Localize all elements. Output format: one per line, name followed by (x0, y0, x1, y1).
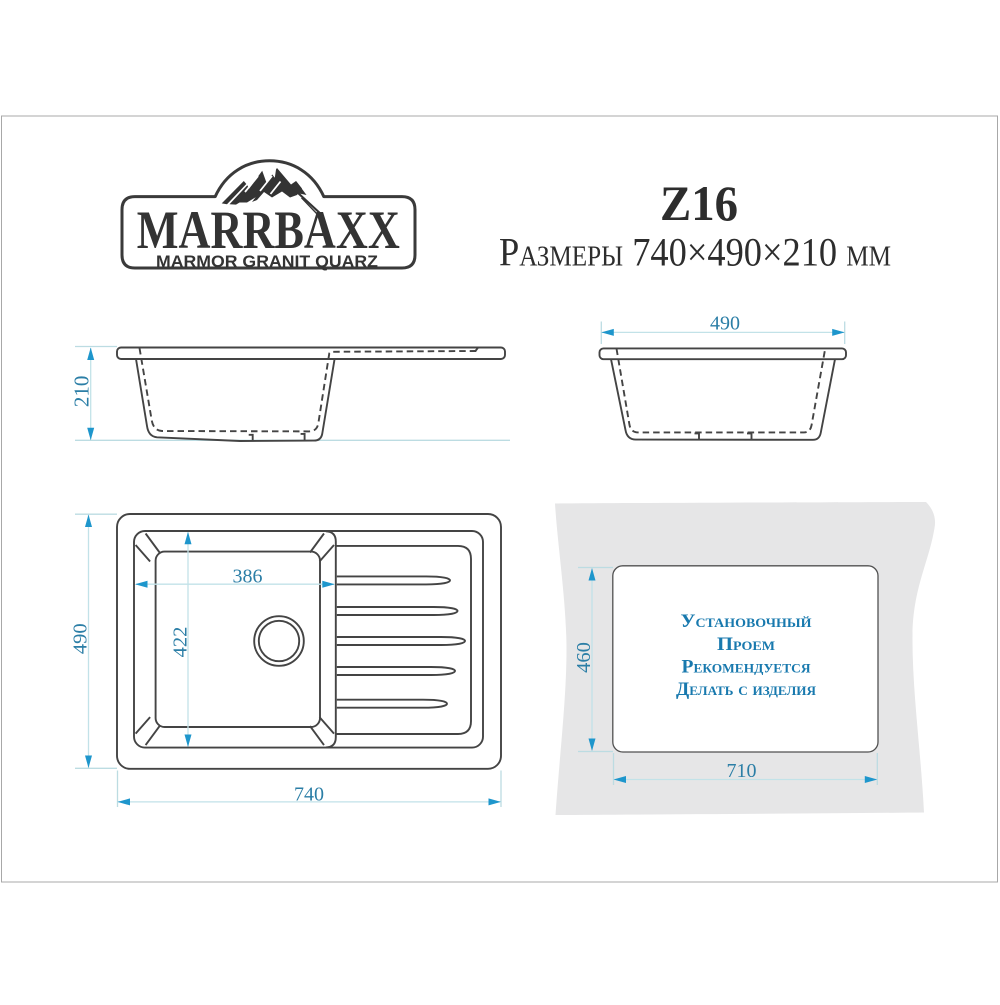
svg-text:490: 490 (69, 623, 91, 654)
svg-text:740: 740 (294, 784, 324, 806)
svg-text:Рекомендуется: Рекомендуется (682, 657, 812, 678)
svg-text:Z16: Z16 (660, 175, 738, 231)
svg-text:Размеры 740×490×210 мм: Размеры 740×490×210 мм (499, 230, 891, 275)
svg-text:490: 490 (710, 313, 740, 335)
svg-text:210: 210 (70, 376, 94, 408)
svg-text:Делать с изделия: Делать с изделия (676, 679, 817, 700)
svg-text:422: 422 (169, 627, 191, 658)
svg-text:460: 460 (573, 642, 595, 673)
svg-text:386: 386 (233, 566, 263, 588)
svg-text:Проем: Проем (717, 634, 775, 655)
svg-text:MARMOR GRANIT QUARZ: MARMOR GRANIT QUARZ (156, 253, 378, 271)
svg-text:MARRBAXX: MARRBAXX (137, 200, 400, 260)
svg-text:Установочный: Установочный (681, 611, 812, 632)
svg-text:710: 710 (727, 760, 757, 782)
